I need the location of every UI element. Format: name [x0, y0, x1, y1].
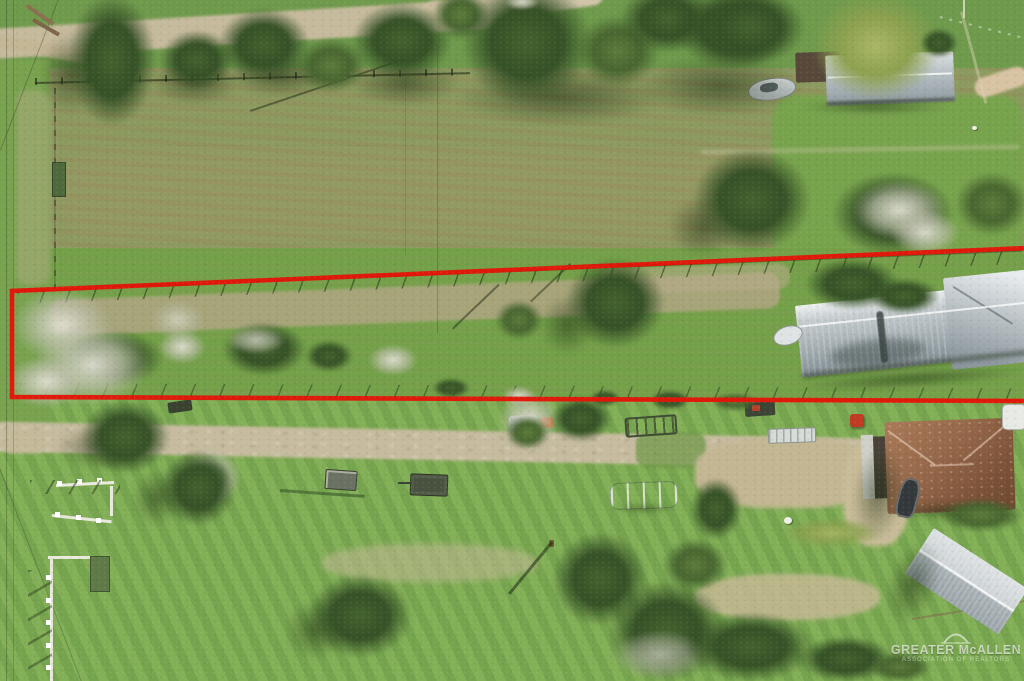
aerial-photo: GREATER McALLEN ASSOCIATION OF REALTORS: [0, 0, 1024, 681]
parcel-boundary: [0, 0, 1024, 681]
parcel-boundary-outline: [12, 248, 1024, 401]
